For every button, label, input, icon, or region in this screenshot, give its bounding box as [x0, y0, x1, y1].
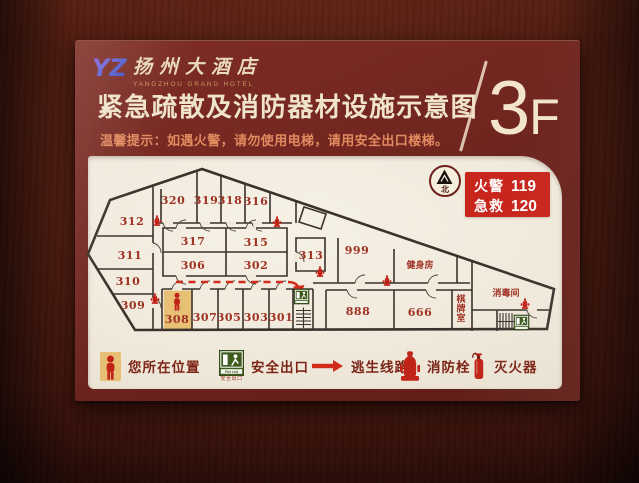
room-label-309: 309 [121, 299, 145, 312]
room-label-318: 318 [218, 194, 242, 207]
room-label-311: 311 [118, 249, 142, 262]
safe-exit-icon [294, 289, 309, 304]
legend-safe-exit: Fire exit 安全出口 安全出口 [219, 348, 309, 384]
fire-hydrant-icon [273, 216, 282, 227]
room-label-888: 888 [346, 305, 370, 318]
room-label-306: 306 [181, 259, 205, 272]
room-label-312: 312 [120, 215, 144, 228]
fire-hydrant-icon [153, 215, 162, 226]
safe-exit-icon: Fire exit [219, 350, 244, 376]
room-label-999: 999 [345, 244, 369, 257]
floor-plan: 3203193183163123113103093173153063023139… [84, 161, 562, 339]
fire-hydrant-icon [521, 298, 530, 309]
room-label-308: 308 [165, 313, 189, 326]
room-label-310: 310 [116, 275, 140, 288]
hotel-name-cn: 扬州大酒店 [133, 52, 263, 79]
hotel-logo: YZ 扬州大酒店 YANGZHOU GRAND HOTEL [91, 50, 263, 88]
legend-escape-route: 逃生线路 [312, 348, 409, 384]
fire-hydrant-icon [400, 350, 420, 383]
room-label-315: 315 [244, 236, 268, 249]
sign-title: 紧急疏散及消防器材设施示意图 [97, 87, 478, 124]
fire-hydrant-icon [151, 293, 160, 304]
room-label-303: 303 [244, 311, 268, 324]
fire-extinguisher-icon [471, 350, 487, 383]
floor-plan-panel: 北 火警 119 急救 120 [88, 156, 562, 389]
room-label-666: 666 [408, 306, 432, 319]
stairs-layer [296, 308, 514, 331]
sign-subtitle: 温馨提示：如遇火警，请勿使用电梯，请用安全出口楼梯。 [100, 130, 448, 149]
room-label-301: 301 [269, 311, 293, 324]
room-label-健身房: 健身房 [406, 259, 433, 271]
room-label-307: 307 [193, 311, 217, 324]
room-label-棋牌室: 棋牌室 [455, 293, 465, 324]
floor-number: 3 [488, 71, 528, 147]
room-label-313: 313 [299, 249, 323, 262]
escape-route-arrow-icon [312, 359, 344, 373]
room-label-302: 302 [244, 259, 268, 272]
you-are-here-icon [100, 352, 121, 381]
wall-background: YZ 扬州大酒店 YANGZHOU GRAND HOTEL 紧急疏散及消防器材设… [0, 0, 639, 483]
legend-fire-hydrant: 消防栓 [400, 348, 471, 384]
floor-indicator: 3 F [488, 71, 560, 147]
room-label-319: 319 [194, 194, 218, 207]
legend-fire-extinguisher: 灭火器 [471, 348, 538, 384]
fire-hydrant-icon [383, 275, 392, 286]
safe-exit-icon [514, 315, 529, 330]
room-label-305: 305 [217, 311, 241, 324]
evacuation-sign-board: YZ 扬州大酒店 YANGZHOU GRAND HOTEL 紧急疏散及消防器材设… [75, 40, 580, 401]
room-label-316: 316 [244, 195, 268, 208]
room-label-317: 317 [181, 235, 205, 248]
room-label-消毒间: 消毒间 [492, 287, 519, 299]
room-label-320: 320 [161, 194, 185, 207]
floor-suffix: F [529, 92, 560, 142]
hotel-logo-icon: YZ [91, 50, 129, 84]
svg-text:Fire exit: Fire exit [225, 370, 239, 374]
legend-you-are-here: 您所在位置 [100, 348, 201, 384]
doors-layer [153, 220, 537, 318]
svg-text:YZ: YZ [92, 54, 127, 82]
fire-hydrant-icon [316, 266, 325, 277]
